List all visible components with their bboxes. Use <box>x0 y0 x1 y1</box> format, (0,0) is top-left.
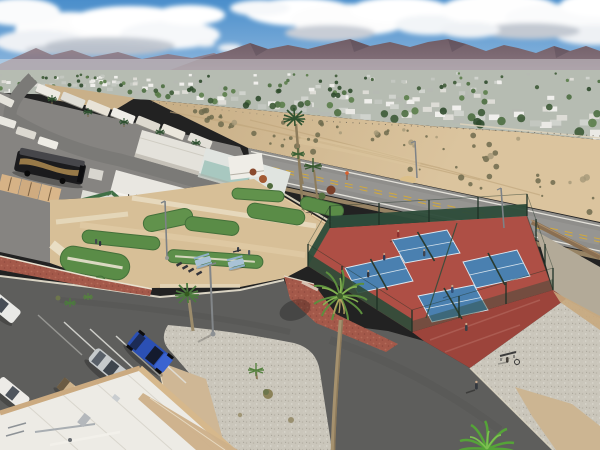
town-tree <box>165 94 170 99</box>
town-tree <box>99 81 103 85</box>
dry-shrub <box>232 120 238 126</box>
town-house <box>452 106 461 111</box>
town-tree <box>127 90 132 95</box>
town-tree <box>348 89 353 94</box>
town-house <box>474 94 481 98</box>
desert-shrub <box>371 138 375 142</box>
desert-shrub <box>204 108 210 114</box>
town-house <box>389 95 396 99</box>
town-tree <box>94 76 97 79</box>
town-tree <box>286 79 289 82</box>
desert-shrub <box>307 138 310 141</box>
desert-shrub <box>220 116 223 119</box>
town-house <box>114 76 118 79</box>
town-house <box>497 81 502 84</box>
town-house <box>346 109 356 114</box>
town-house <box>570 78 574 81</box>
town-house <box>390 104 399 109</box>
town-tree <box>278 84 282 88</box>
town-tree <box>122 81 126 85</box>
desert-shrub <box>539 186 541 188</box>
town-tree <box>68 83 72 87</box>
town-tree <box>306 74 309 77</box>
town-tree <box>189 86 193 90</box>
town-tree <box>349 97 355 103</box>
town-house <box>107 88 113 92</box>
town-tree <box>478 109 485 116</box>
town-tree <box>476 120 485 129</box>
desert-shrub <box>535 178 540 183</box>
town-tree <box>154 89 159 94</box>
town-house <box>309 88 315 92</box>
town-tree <box>497 117 505 125</box>
town-tree <box>328 87 332 91</box>
desert-shrub <box>425 135 428 138</box>
town-tree <box>459 77 462 80</box>
town-tree <box>484 80 488 84</box>
town-tree <box>335 93 340 98</box>
desert-shrub <box>273 135 276 138</box>
town-tree <box>331 92 336 97</box>
town-house <box>557 115 568 121</box>
town-house <box>116 81 121 84</box>
desert-shrub <box>384 131 389 136</box>
town-house <box>586 77 590 80</box>
cloud-puff <box>195 41 215 47</box>
desert-shrub <box>587 209 593 215</box>
town-tree <box>327 102 333 108</box>
town-house <box>431 78 435 81</box>
desert-shrub <box>218 121 224 127</box>
town-tree <box>223 86 227 90</box>
dry-shrub <box>583 174 590 181</box>
town-tree <box>566 94 571 99</box>
town-house <box>174 81 178 84</box>
town-tree <box>371 78 374 81</box>
town-house <box>373 91 379 95</box>
town-tree <box>482 99 488 105</box>
town-house <box>456 83 461 86</box>
desert-shrub <box>320 122 324 126</box>
desert-shrub <box>468 182 472 186</box>
desert-shrub <box>336 126 339 129</box>
town-tree <box>458 72 460 74</box>
town-house <box>147 79 151 82</box>
desert-shrub <box>204 118 209 123</box>
dry-shrub <box>487 153 493 159</box>
town-house <box>431 103 439 108</box>
town-house <box>217 96 224 100</box>
town-house <box>133 78 137 81</box>
town-house <box>487 99 495 103</box>
town-house <box>62 81 67 84</box>
town-house <box>231 97 238 101</box>
town-tree <box>199 93 204 98</box>
desert-shrub <box>315 132 320 137</box>
town-tree <box>161 84 165 88</box>
desert-shrub <box>289 136 293 140</box>
dry-shrub <box>516 137 520 141</box>
desert-shrub <box>470 133 476 139</box>
desert-shrub <box>419 169 421 171</box>
desert-shrub <box>408 167 413 172</box>
town-house <box>363 90 369 94</box>
town-house <box>173 91 179 95</box>
town-house <box>475 77 479 80</box>
town-tree <box>546 104 553 111</box>
town-house <box>3 88 9 92</box>
town-tree <box>142 88 147 93</box>
town-tree <box>243 102 249 108</box>
town-house <box>90 84 95 87</box>
town-house <box>459 91 465 95</box>
desert-shrub <box>541 195 543 197</box>
town-tree <box>79 84 83 88</box>
aerial-photo: Aerial drone photograph of a desert RV r… <box>0 0 600 450</box>
town-tree <box>103 80 106 83</box>
town-house <box>258 104 267 109</box>
town-house <box>367 75 370 78</box>
town-tree <box>156 93 161 98</box>
town-tree <box>401 110 408 117</box>
town-tree <box>404 95 409 100</box>
desert-shrub <box>480 187 483 190</box>
town-tree <box>337 86 341 90</box>
town-house <box>364 99 372 103</box>
orange-road-marker <box>345 171 349 175</box>
town-house <box>540 122 552 128</box>
cloud-left <box>0 0 225 56</box>
town-tree <box>334 109 341 116</box>
town-tree <box>588 119 597 128</box>
town-house <box>330 84 335 87</box>
town-tree <box>208 98 214 104</box>
town-tree <box>555 72 557 74</box>
town-house <box>316 85 321 88</box>
town-house <box>374 100 382 104</box>
town-tree <box>381 110 388 117</box>
town-tree <box>54 76 57 79</box>
town-house <box>6 81 11 84</box>
desert-shrub <box>550 180 555 185</box>
town-house <box>423 107 432 112</box>
desert-shrub <box>458 174 464 180</box>
desert-shrub <box>403 144 405 146</box>
town-tree <box>199 80 202 83</box>
town-tree <box>390 115 398 123</box>
town-house <box>179 83 184 86</box>
town-tree <box>335 81 339 85</box>
town-tree <box>453 81 457 85</box>
town-house <box>72 84 77 87</box>
town-tree <box>342 90 347 95</box>
town-house <box>401 80 405 83</box>
town-tree <box>269 103 276 110</box>
desert-shrub <box>310 149 316 155</box>
town-tree <box>169 90 174 95</box>
white-trailer <box>228 153 265 180</box>
town-tree <box>364 77 367 80</box>
desert-shrub <box>472 144 476 148</box>
desert-shrub <box>209 115 214 120</box>
town-house <box>590 130 600 137</box>
town-tree <box>304 100 310 106</box>
town-tree <box>466 82 470 86</box>
desert-shrub <box>406 130 408 132</box>
town-tree <box>231 89 236 94</box>
town-house <box>254 74 257 76</box>
town-house <box>188 83 193 86</box>
town-tree <box>222 92 227 97</box>
town-tree <box>207 75 210 78</box>
desert-shrub <box>487 174 493 180</box>
town-house <box>192 74 195 77</box>
town-house <box>239 91 245 95</box>
town-house <box>391 80 395 83</box>
town-tree <box>566 79 569 82</box>
town-house <box>135 91 141 95</box>
town-house <box>453 118 464 124</box>
town-house <box>527 73 530 75</box>
desert-shrub <box>269 142 272 145</box>
town-house <box>454 111 464 116</box>
town-tree <box>279 102 285 108</box>
town-tree <box>77 79 80 82</box>
dry-shrub <box>374 130 379 135</box>
town-tree <box>319 80 322 83</box>
town-house <box>254 82 259 85</box>
desert-shrub <box>486 142 492 148</box>
town-house <box>89 80 93 83</box>
town-house <box>360 114 370 120</box>
town-house <box>440 89 446 93</box>
town-house <box>189 74 192 76</box>
town-house <box>351 114 361 120</box>
dry-shrub <box>435 136 438 139</box>
desert-shrub <box>313 138 318 143</box>
town-house <box>148 84 153 87</box>
dry-shrub <box>402 128 405 131</box>
town-tree <box>411 107 418 114</box>
town-tree <box>471 89 476 94</box>
town-tree <box>517 114 525 122</box>
town-tree <box>76 75 79 78</box>
town-tree <box>535 85 539 89</box>
town-house <box>427 88 433 92</box>
desert-shrub <box>455 166 458 169</box>
town-tree <box>459 95 464 100</box>
town-tree <box>443 84 447 88</box>
town-house <box>310 108 319 113</box>
town-house <box>395 97 402 101</box>
desert-shrub <box>536 174 539 177</box>
town-house <box>547 96 554 100</box>
town-house <box>112 83 117 86</box>
desert-shrub <box>193 109 197 113</box>
town-house <box>287 73 290 75</box>
town-house <box>195 80 199 83</box>
desert-shrub <box>592 197 595 200</box>
dry-shrub <box>568 181 571 184</box>
town-house <box>102 83 107 86</box>
town-tree <box>501 75 504 78</box>
dry-shrub <box>339 131 342 134</box>
town-tree <box>80 74 83 77</box>
town-house <box>0 74 2 76</box>
town-tree <box>483 90 488 95</box>
photo-canvas <box>0 0 600 450</box>
town-house <box>133 82 138 85</box>
town-tree <box>335 75 338 78</box>
town-tree <box>86 76 89 79</box>
town-house <box>218 100 226 105</box>
town-tree <box>440 108 447 115</box>
desert-shrub <box>493 164 499 170</box>
town-tree <box>255 96 261 102</box>
desert-shrub <box>283 139 285 141</box>
town-tree <box>293 73 296 76</box>
desert-shrub <box>251 131 256 136</box>
town-tree <box>45 77 48 80</box>
desert-shrub <box>281 144 285 148</box>
town-house <box>60 76 64 79</box>
town-tree <box>97 88 102 93</box>
town-house <box>2 80 6 83</box>
town-house <box>412 97 419 101</box>
town-house <box>101 75 104 78</box>
desert-shrub <box>442 148 444 150</box>
town-tree <box>277 89 282 94</box>
town-house <box>530 120 542 126</box>
town-tree <box>417 86 421 90</box>
town-tree <box>298 101 304 107</box>
town-tree <box>42 76 45 79</box>
town-tree <box>268 83 272 87</box>
town-tree <box>587 87 591 91</box>
